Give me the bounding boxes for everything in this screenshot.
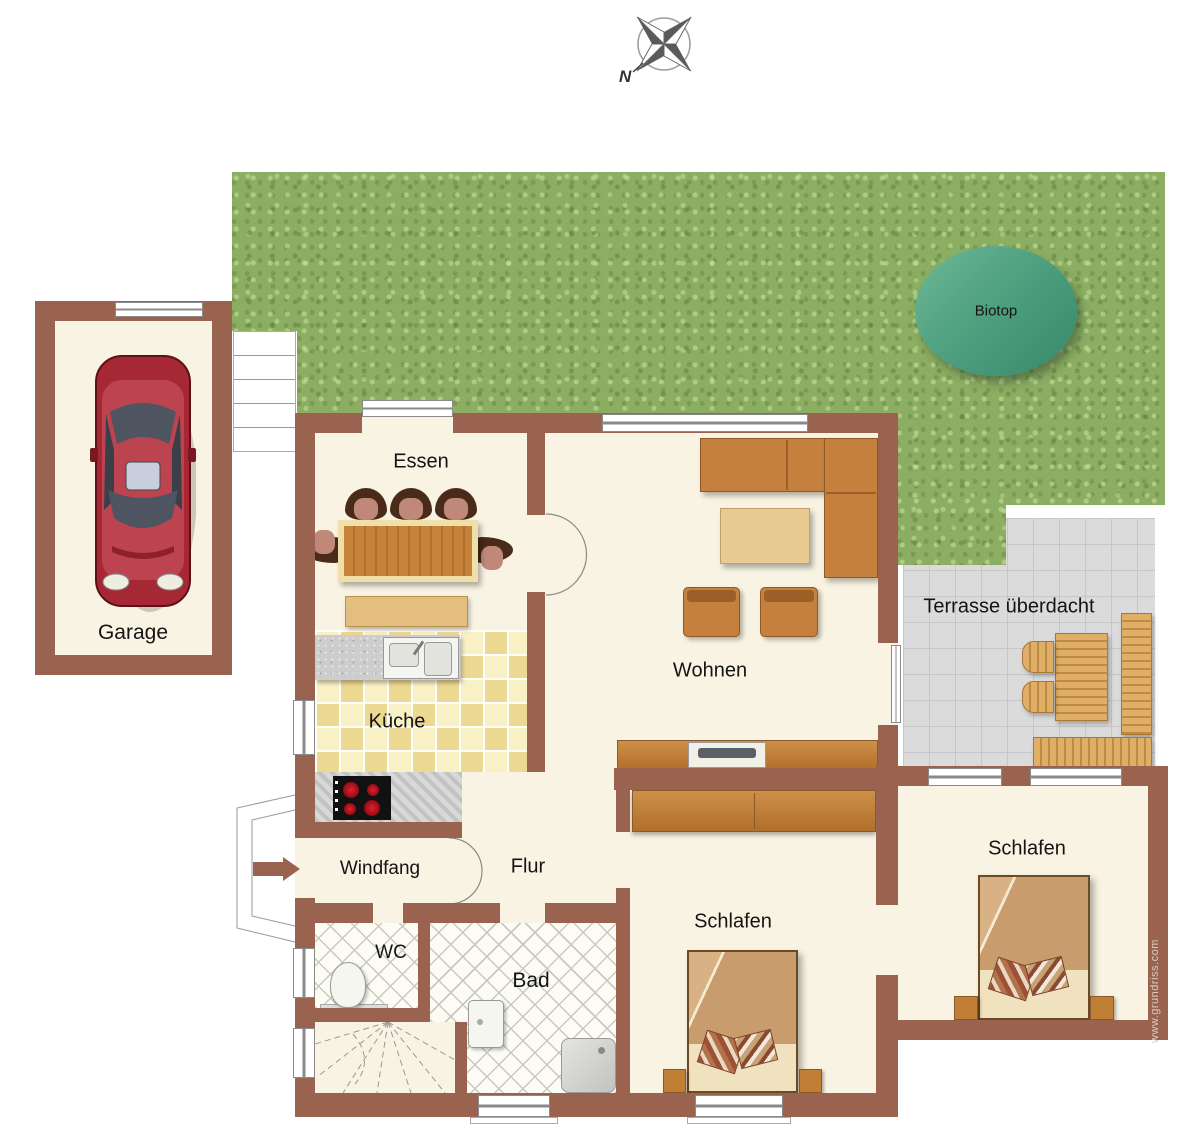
sofa-seam xyxy=(826,492,876,494)
wall-west xyxy=(295,413,315,1117)
entrance-arrow-icon xyxy=(253,862,283,876)
window-wohnen xyxy=(602,414,808,432)
window-bad xyxy=(478,1095,550,1117)
wall-flur-east xyxy=(616,790,630,832)
biotop-pond: Biotop xyxy=(915,246,1077,376)
wall-bedroom-divider xyxy=(876,790,898,905)
window-wc xyxy=(293,948,315,998)
wardrobe xyxy=(632,790,876,832)
wall-corridor xyxy=(545,903,622,923)
exterior-steps xyxy=(233,331,296,452)
garage-door xyxy=(115,302,203,317)
burner xyxy=(343,782,359,798)
room-label-garage: Garage xyxy=(98,621,168,645)
armchair xyxy=(683,587,740,637)
coffee-table xyxy=(720,508,810,564)
floor-plan: N Biotop Terrasse überdacht Garage xyxy=(0,0,1200,1145)
burner xyxy=(344,803,356,815)
kitchen-sink xyxy=(383,637,459,679)
room-label-bad: Bad xyxy=(512,969,549,993)
room-label-wc: WC xyxy=(375,942,407,964)
wall-stairs-east xyxy=(455,1022,467,1093)
sofa-right xyxy=(824,438,878,578)
cooktop xyxy=(333,776,391,820)
watermark: www.grundriss.com xyxy=(1149,925,1167,1043)
room-label-terrasse: Terrasse überdacht xyxy=(923,596,1094,619)
wall-wc-south xyxy=(315,1008,430,1022)
nightstand xyxy=(954,996,978,1020)
wall-wc-east xyxy=(418,923,430,1008)
window-stairs xyxy=(293,1028,315,1078)
sink-basin xyxy=(424,642,452,676)
terrace-door-leaf xyxy=(891,645,901,723)
window-schlafen-rechts xyxy=(928,768,1002,786)
room-label-biotop: Biotop xyxy=(975,303,1018,320)
shower-drain xyxy=(598,1047,605,1054)
room-label-schlafen-rechts: Schlafen xyxy=(988,838,1066,861)
room-label-essen: Essen xyxy=(393,451,449,474)
sideboard-essen xyxy=(345,596,468,627)
basin-drain xyxy=(477,1019,483,1025)
door-arc-flur xyxy=(447,836,485,906)
window-sill xyxy=(470,1117,558,1124)
wall-corridor xyxy=(295,903,373,923)
room-label-windfang: Windfang xyxy=(340,858,420,880)
window-sill xyxy=(687,1117,791,1124)
bed-center xyxy=(687,950,798,1093)
nightstand xyxy=(663,1069,686,1093)
burner xyxy=(364,800,380,816)
tv-screen xyxy=(698,748,756,758)
entrance-arrow-head-icon xyxy=(283,857,300,881)
window-schlafen-mitte xyxy=(695,1095,783,1117)
terrace-bench-right xyxy=(1121,613,1152,735)
terrace-bench-bottom xyxy=(1033,737,1152,767)
wall-kueche-wohnen xyxy=(527,592,545,772)
wall-corridor xyxy=(403,903,500,923)
nightstand xyxy=(799,1069,822,1093)
wall-bedroom-right-north xyxy=(876,766,1168,786)
window-essen xyxy=(362,400,453,417)
garden-notch xyxy=(898,505,1006,565)
wall-wohnen-south xyxy=(614,768,898,790)
cooktop-knobs xyxy=(335,781,338,815)
wall-kueche-south xyxy=(295,822,462,838)
car-icon xyxy=(90,350,196,616)
nightstand xyxy=(1090,996,1114,1020)
washbasin xyxy=(468,1000,504,1048)
wall-bedroom-divider xyxy=(876,975,898,1093)
room-label-flur: Flur xyxy=(511,856,545,879)
compass-north-label: N xyxy=(619,67,632,86)
shower xyxy=(561,1038,616,1093)
wall-south xyxy=(295,1093,898,1117)
terrace-table xyxy=(1055,633,1108,721)
burner xyxy=(367,784,379,796)
room-label-schlafen-mitte: Schlafen xyxy=(694,911,772,934)
stairs xyxy=(315,1022,455,1093)
sofa-seam xyxy=(786,440,788,490)
wall-bedroom-right-south xyxy=(898,1020,1168,1040)
armchair xyxy=(760,587,818,637)
dining-table xyxy=(338,520,478,582)
wall-flur-east xyxy=(616,888,630,923)
terrace-chair xyxy=(1022,641,1054,673)
bed-right xyxy=(978,875,1090,1020)
wardrobe-divider xyxy=(754,793,755,829)
wall-bad-east xyxy=(616,923,630,1093)
wall-essen-wohnen xyxy=(527,413,545,515)
compass-rose-icon: N xyxy=(612,2,712,90)
room-label-wohnen: Wohnen xyxy=(673,660,747,683)
window-kueche xyxy=(293,700,315,755)
door-arc-wohnen xyxy=(545,513,590,597)
window-schlafen-rechts xyxy=(1030,768,1122,786)
terrace-chair xyxy=(1022,681,1054,713)
room-label-kueche: Küche xyxy=(369,711,426,734)
toilet-icon xyxy=(330,962,366,1008)
